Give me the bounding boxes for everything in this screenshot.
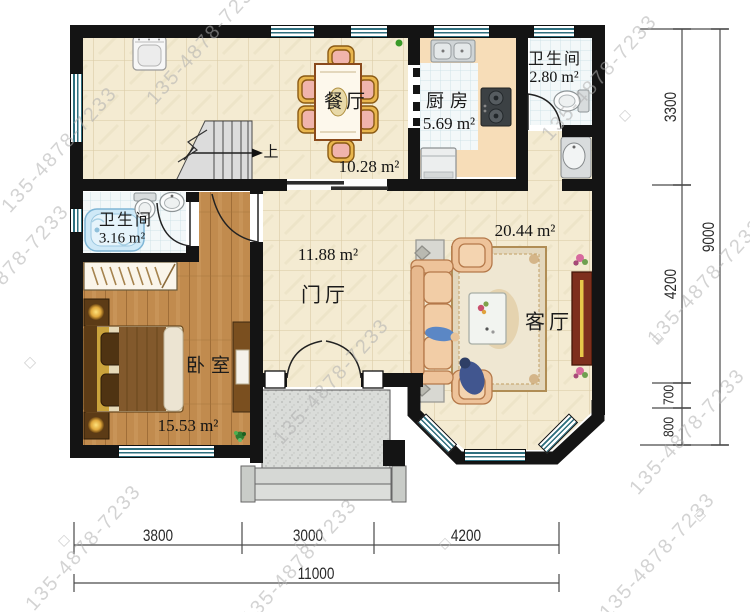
room-label-hall: 门厅 [301,279,349,308]
room-area-kitchen: 5.69 m² [423,114,475,134]
dim-right-4200: 4200 [661,269,681,299]
room-label-dining: 餐厅 [324,87,368,114]
stairs-up-label: 上 [263,141,278,162]
dim-right-total-9000: 9000 [699,222,719,252]
window-symbol [270,25,315,38]
nightstand-top [84,299,109,326]
room-area-dining: 10.28 m² [339,157,400,177]
window-symbol [118,445,215,458]
dim-bottom-4200: 4200 [451,526,481,546]
room-area-bedroom: 15.53 m² [158,416,219,436]
dim-right-800: 800 [661,417,678,437]
room-label-bath-left: 卫生间 [99,206,153,230]
stove [481,88,511,126]
small-plant-dot [396,40,403,47]
room-label-kitchen: 厨房 [426,87,474,113]
double-bed [84,326,183,412]
floor-plan-canvas: 餐厅 10.28 m² 厨房 5.69 m² 卫生间 2.80 m² 卫生间 3… [0,0,750,612]
kitchen-folding-door [413,68,420,126]
window-symbol [464,449,526,462]
entry-porch [241,390,406,502]
room-label-living: 客厅 [525,306,573,335]
wardrobe [84,262,177,290]
room-area-bath-left: 3.16 m² [99,231,145,248]
refrigerator [421,148,456,180]
sink-left-bath [160,193,184,212]
washbasin-corridor [561,137,591,178]
room-area-living: 20.44 m² [495,221,556,241]
toilet-top-bath [554,90,589,112]
window-symbol [433,25,490,38]
dim-bottom-total-11000: 11000 [298,564,335,584]
room-area-bath-top: 2.80 m² [529,69,578,87]
dim-bottom-3000: 3000 [293,526,323,546]
window-symbol [70,73,83,143]
coffee-table [469,293,506,344]
kitchen-sink [431,40,475,62]
tv-cabinet [572,272,592,365]
room-area-hall: 11.88 m² [298,245,358,265]
window-symbol [70,208,83,233]
nightstand-bottom [84,412,109,439]
dim-bottom-3800: 3800 [143,526,173,546]
dim-right-3300: 3300 [661,92,681,122]
floor-plan-drawing [0,0,750,612]
washing-machine [133,36,166,70]
dim-right-700: 700 [661,385,678,405]
window-symbol [350,25,388,38]
sliding-door [287,181,388,190]
window-symbol [533,25,575,38]
room-label-bedroom: 卧室 [186,351,236,378]
room-label-bath-top: 卫生间 [528,45,582,69]
